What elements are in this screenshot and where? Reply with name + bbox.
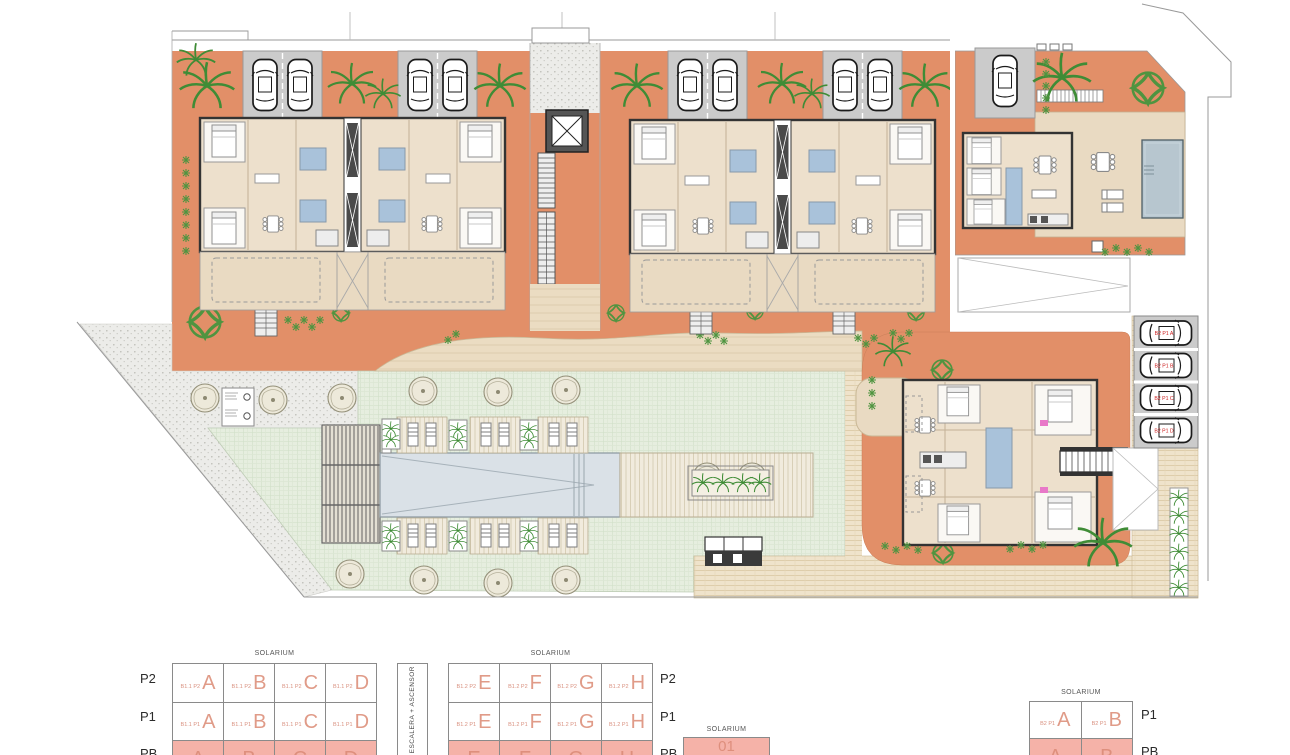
unit-cell: B (1082, 739, 1133, 755)
floor-label-pb: PB (1141, 744, 1169, 755)
deck-planter (688, 466, 773, 500)
palm-planter (382, 419, 400, 449)
floor-label-p1: P1 (140, 709, 168, 724)
legend-table-b12: B1.2 P2E B1.2 P2F B1.2 P2G B1.2 P2H B1.2… (448, 663, 653, 755)
tree-icon (552, 376, 580, 404)
unit-cell: B1.2 P2G (551, 664, 602, 702)
villa-house (963, 133, 1072, 228)
communal-pool (380, 447, 620, 517)
floor-label-p1: P1 (1141, 707, 1169, 722)
tree-icon (191, 384, 219, 412)
palm-planter (520, 420, 538, 450)
car-icon (867, 60, 893, 111)
unit-cell: B1.1 P2C (275, 664, 326, 702)
unit-cell: B1.2 P2H (602, 664, 652, 702)
unit-cell: B1.1 P2B (224, 664, 275, 702)
unit-cell: E (449, 741, 500, 755)
tree-icon (336, 560, 364, 588)
floor-label-p1: P1 (660, 709, 688, 724)
tree-icon (328, 384, 356, 412)
legend-row-pb: E F G H (449, 741, 652, 755)
stairs (538, 153, 555, 208)
unit-cell: B2 P1B (1082, 702, 1133, 738)
legend-row-p2: B1.1 P2A B1.1 P2B B1.1 P2C B1.1 P2D (173, 664, 376, 703)
legend-row-pb: A B (1030, 739, 1132, 755)
legend-row-p1: B1.1 P1A B1.1 P1B B1.1 P1C B1.1 P1D (173, 703, 376, 741)
car-icon (442, 60, 468, 111)
unit-cell: D (326, 741, 376, 755)
tree-icon (409, 377, 437, 405)
floor-label-p2: P2 (660, 671, 688, 686)
parking-spot-label: B2 P1 D (1154, 429, 1174, 435)
unit-cell: B1.2 P1E (449, 703, 500, 740)
palm-planter (520, 521, 538, 551)
car-icon (677, 60, 703, 111)
solarium-label-01: SOLARIUM (683, 726, 770, 733)
car-icon (712, 60, 738, 111)
sun-lounger-deck (470, 518, 520, 554)
legend-row-p1: B1.2 P1E B1.2 P1F B1.2 P1G B1.2 P1H (449, 703, 652, 741)
unit-cell: B1.1 P2D (326, 664, 376, 702)
terrace-b11 (200, 252, 505, 310)
legend-table-b11: B1.1 P2A B1.1 P2B B1.1 P2C B1.1 P2D B1.1… (172, 663, 377, 755)
legend-row-pb: A B C D (173, 741, 376, 755)
legend-cell-01: 01 (683, 737, 770, 755)
stairs-elevator-legend: ESCALERA + ASCENSOR (397, 663, 428, 755)
tree-icon (259, 386, 287, 414)
unit-cell: B1.2 P2F (500, 664, 551, 702)
legend-row-p1: B2 P1A B2 P1B (1030, 702, 1132, 739)
b2-driveway (1113, 448, 1158, 530)
car-icon (287, 60, 313, 111)
apartment-building-b12 (630, 120, 935, 254)
pool-facilities-building (705, 537, 762, 566)
sun-lounger-deck (397, 518, 447, 554)
unit-cell: C (275, 741, 326, 755)
outdoor-dining (1091, 153, 1115, 172)
legend-row-p2: B1.2 P2E B1.2 P2F B1.2 P2G B1.2 P2H (449, 664, 652, 703)
solarium-label-b11: SOLARIUM (172, 650, 377, 657)
solarium-label-b12: SOLARIUM (448, 650, 653, 657)
unit-cell: B1.1 P1B (224, 703, 275, 740)
sun-lounger-deck (397, 417, 447, 453)
unit-cell: B1.2 P1F (500, 703, 551, 740)
unit-cell: B (224, 741, 275, 755)
pergola (322, 425, 380, 543)
villa-driveway (958, 258, 1130, 312)
car-icon (992, 56, 1018, 107)
east-planter-strip (1169, 488, 1188, 596)
unit-cell: A (1030, 739, 1082, 755)
unit-tag (1040, 487, 1048, 493)
unit-cell: F (500, 741, 551, 755)
legend-table-b2: B2 P1A B2 P1B A B (1029, 701, 1133, 755)
floor-label-p2: P2 (140, 671, 168, 686)
unit-cell: B1.1 P1C (275, 703, 326, 740)
car-icon (832, 60, 858, 111)
unit-tag (1040, 420, 1048, 426)
car-icon (252, 60, 278, 111)
unit-cell: B1.1 P1A (173, 703, 224, 740)
tree-icon (410, 566, 438, 594)
unit-cell: B1.2 P2E (449, 664, 500, 702)
site-plan-page: B2 P1 A B2 P1 B B2 P1 C B2 P1 D SOLARIUM… (0, 0, 1290, 755)
solarium-label-b2: SOLARIUM (1029, 689, 1133, 696)
unit-cell: B2 P1A (1030, 702, 1082, 738)
apartment-building-b11 (200, 118, 505, 252)
unit-cell: B1.2 P1H (602, 703, 652, 740)
b2-parking: B2 P1 A B2 P1 B B2 P1 C B2 P1 D (1134, 316, 1198, 448)
sun-lounger-deck (538, 518, 588, 554)
gravel-path-north (530, 43, 600, 113)
sun-lounger-deck (538, 417, 588, 453)
parking-spot-label: B2 P1 A (1155, 331, 1174, 337)
tree-icon (484, 569, 512, 597)
terrace-b12 (630, 254, 935, 312)
villa-pool (1142, 140, 1183, 218)
unit-cell: B1.1 P2A (173, 664, 224, 702)
parking-spot-label: B2 P1 B (1154, 364, 1174, 370)
unit-cell: H (602, 741, 652, 755)
tree-icon (552, 566, 580, 594)
unit-cell: A (173, 741, 224, 755)
car-icon (407, 60, 433, 111)
parking-spot-label: B2 P1 C (1154, 396, 1174, 402)
plan-legend-box (222, 388, 254, 426)
palm-planter (382, 521, 400, 551)
palm-planter (449, 521, 467, 551)
site-plan-drawing: B2 P1 A B2 P1 B B2 P1 C B2 P1 D (0, 0, 1290, 755)
tree-icon (484, 378, 512, 406)
unit-cell: B1.2 P1G (551, 703, 602, 740)
floor-label-pb: PB (140, 746, 168, 755)
outdoor-shower (1092, 241, 1103, 252)
sun-lounger-deck (470, 417, 520, 453)
roof-access-outline (532, 28, 589, 43)
unit-cell: G (551, 741, 602, 755)
palm-planter (449, 420, 467, 450)
unit-cell: B1.1 P1D (326, 703, 376, 740)
